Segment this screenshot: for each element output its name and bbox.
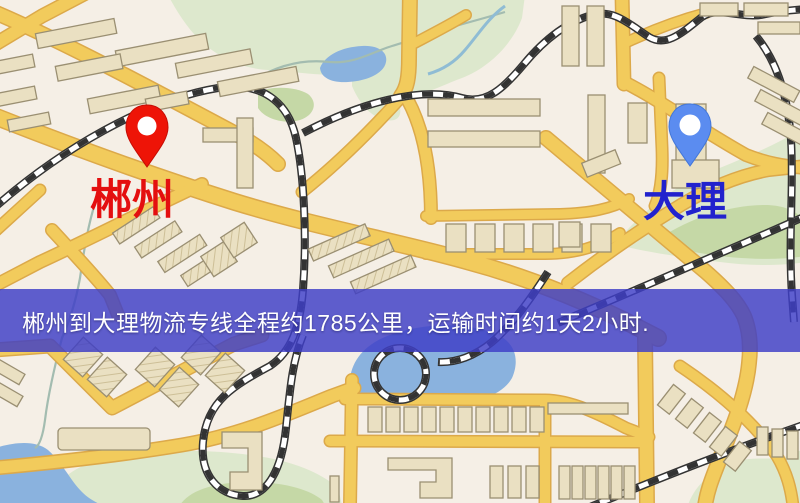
route-info-banner: 郴州到大理物流专线全程约1785公里，运输时间约1天2小时. — [0, 289, 800, 352]
destination-label: 大理 — [643, 181, 727, 223]
origin-label: 郴州 — [90, 179, 174, 221]
route-info-text: 郴州到大理物流专线全程约1785公里，运输时间约1天2小时. — [22, 304, 649, 338]
map-canvas[interactable] — [0, 0, 800, 503]
map-screenshot: 郴州 大理 郴州到大理物流专线全程约1785公里，运输时间约1天2小时. — [0, 0, 800, 503]
